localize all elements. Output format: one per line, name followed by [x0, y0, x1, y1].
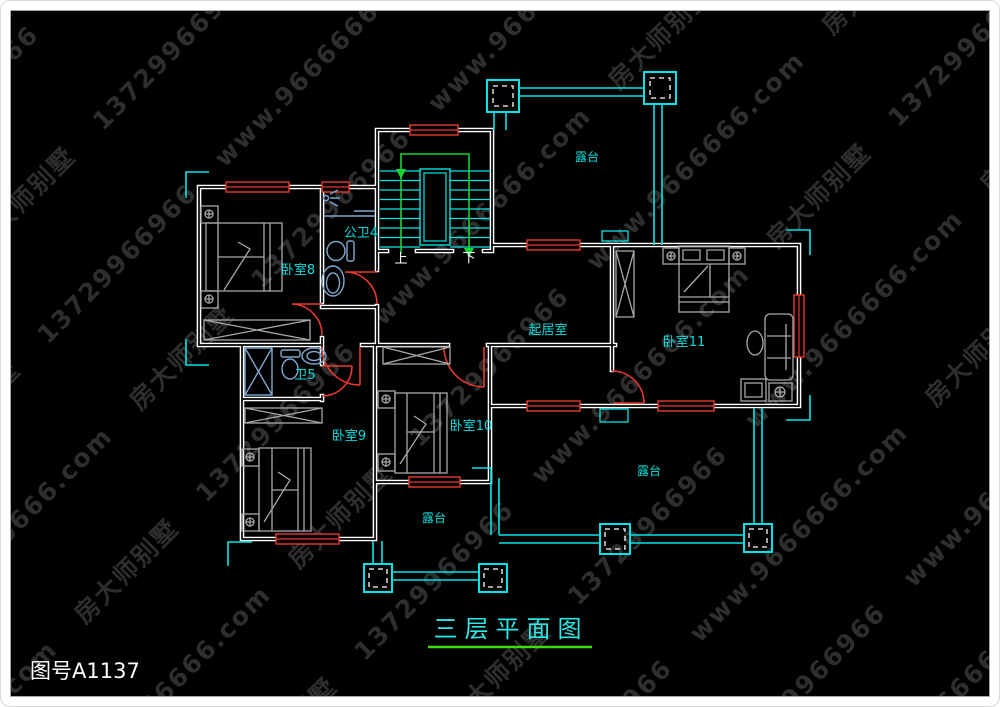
floor-plan: 上 下	[11, 11, 990, 697]
wardrobe	[204, 320, 310, 340]
bathroom-fixtures	[245, 190, 375, 395]
side-table	[769, 383, 792, 401]
drawing-number: 图号A1137	[30, 659, 140, 683]
bed	[663, 246, 745, 312]
plan-title: 三层平面图	[434, 615, 589, 643]
bed	[201, 206, 282, 308]
stair-up-label: 上	[394, 252, 407, 267]
room-label-bedroom10: 卧室10	[450, 418, 493, 434]
bed	[378, 391, 447, 473]
door	[322, 366, 352, 396]
door	[612, 371, 644, 403]
shower-stall-icon	[245, 348, 272, 395]
window	[658, 401, 714, 411]
window	[409, 477, 460, 487]
bed	[242, 448, 311, 531]
window	[410, 125, 458, 135]
room-label-terrace-right: 露台	[637, 463, 661, 478]
room-label-living: 起居室	[528, 322, 567, 338]
toilet-icon	[327, 241, 354, 261]
sofa	[765, 314, 793, 380]
doors	[292, 272, 644, 403]
chair	[741, 379, 766, 401]
room-label-bedroom11: 卧室11	[663, 334, 706, 350]
window	[226, 182, 289, 192]
coffee-table	[747, 331, 763, 355]
wardrobe	[245, 408, 322, 423]
door	[345, 272, 377, 304]
room-label-bedroom9: 卧室9	[332, 428, 366, 444]
wardrobe	[383, 347, 450, 364]
window	[276, 534, 339, 544]
room-label-bedroom8: 卧室8	[281, 262, 315, 278]
cad-canvas: 房大师别墅 13729966966 www.9666666.com 房大师别墅 …	[10, 10, 990, 697]
sink-icon	[322, 266, 344, 296]
window	[794, 295, 804, 357]
room-label-bath4: 公卫4	[344, 226, 378, 241]
wardrobe	[616, 251, 634, 317]
room-label-terrace-bottom: 露台	[422, 510, 446, 525]
furniture	[201, 206, 793, 531]
drawing-page: 房大师别墅 13729966966 www.9666666.com 房大师别墅 …	[0, 0, 1000, 707]
room-label-bath5: 卫5	[294, 368, 315, 383]
window	[527, 240, 580, 250]
window	[527, 401, 580, 411]
stair-down-label: 下	[462, 251, 475, 266]
room-label-terrace-top: 露台	[575, 149, 599, 164]
